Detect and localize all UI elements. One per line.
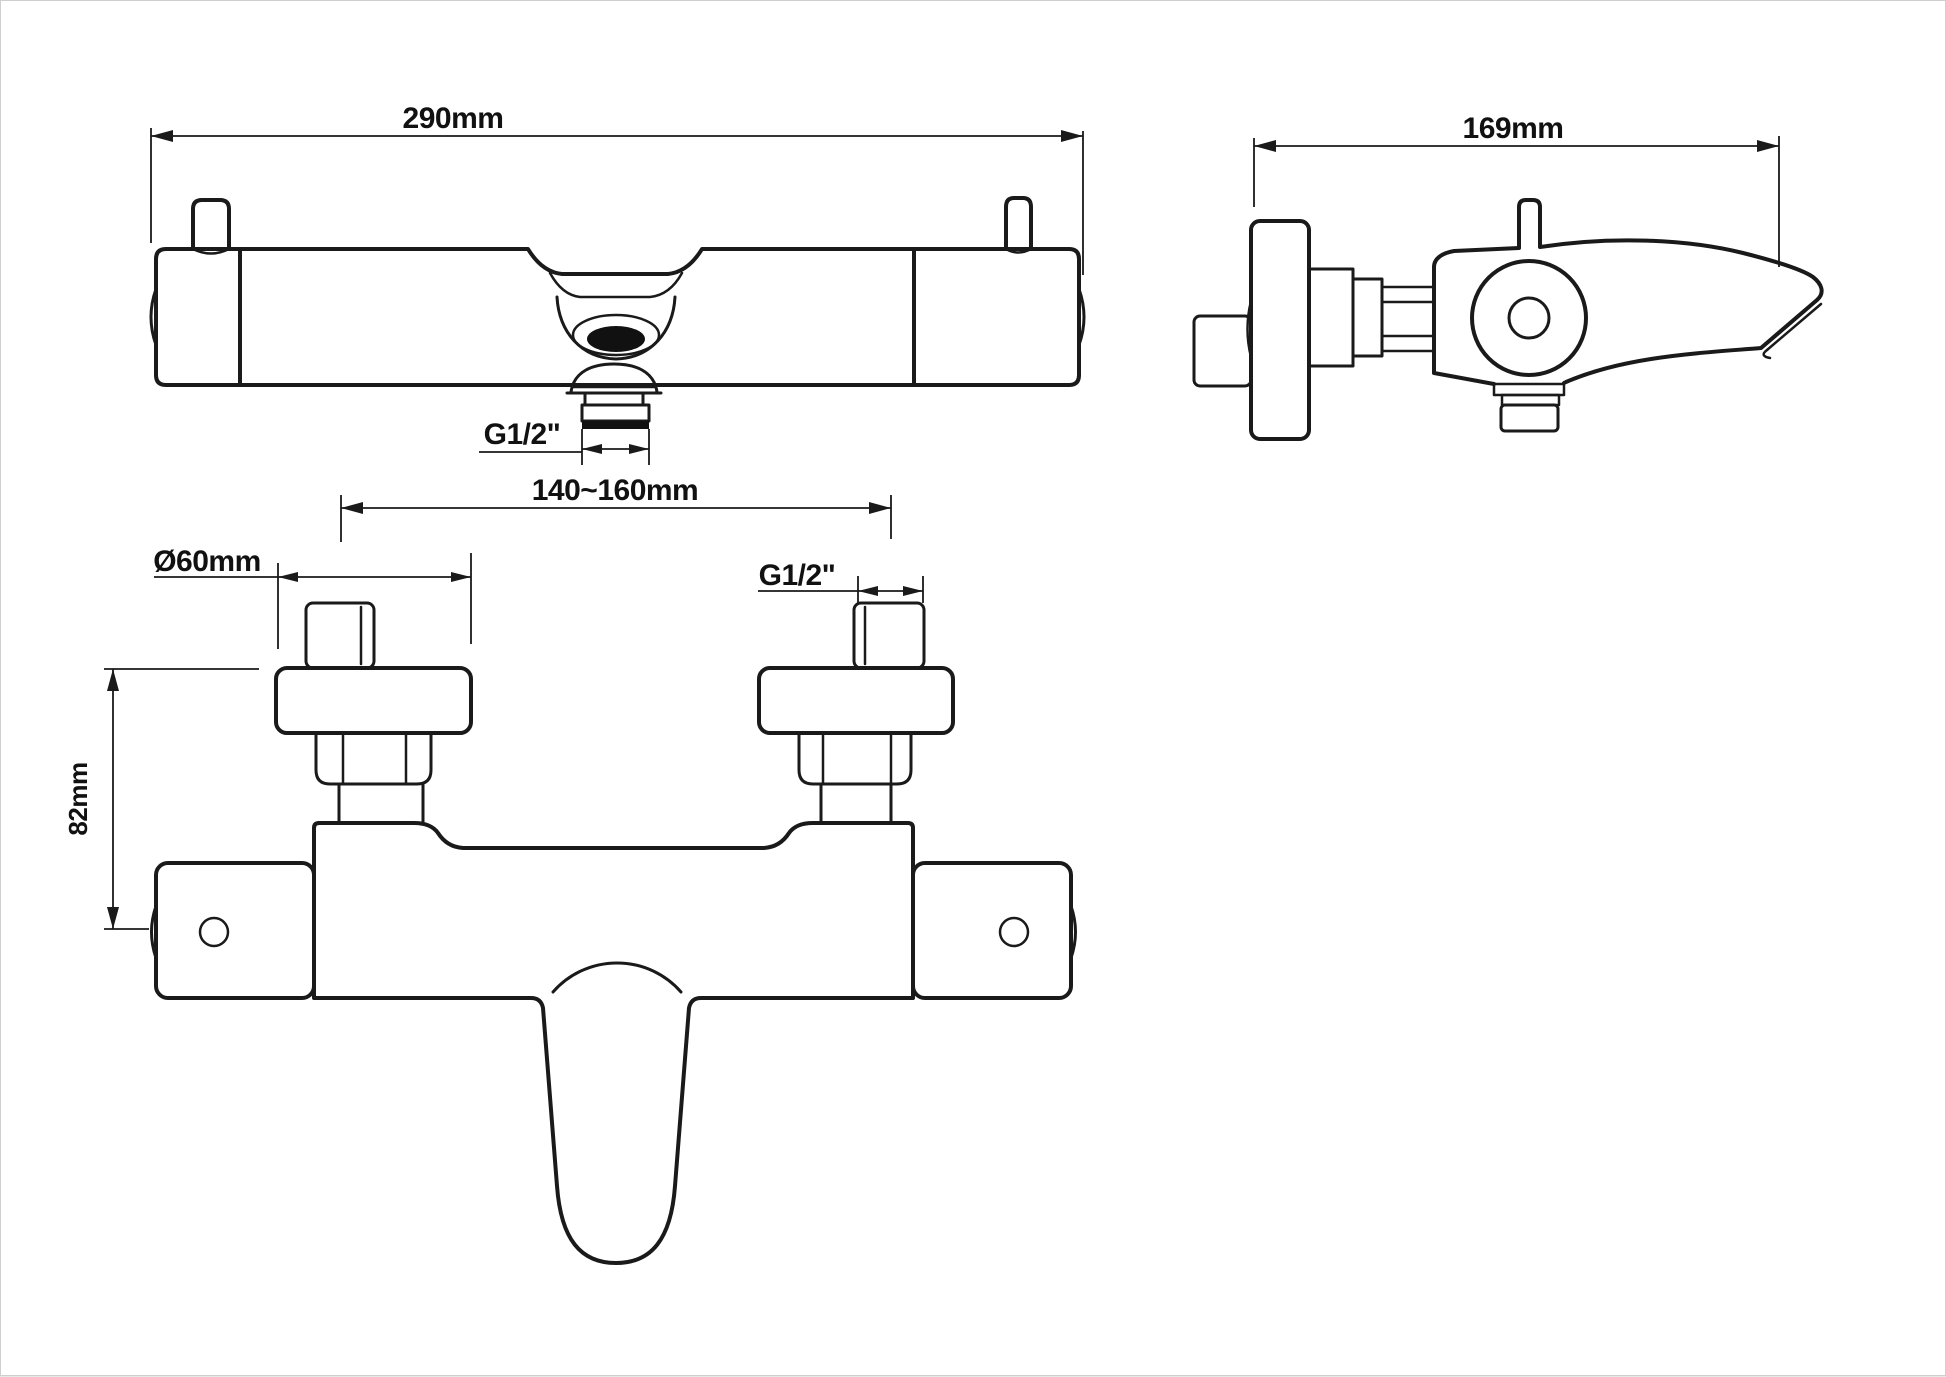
arrowhead-icon bbox=[1254, 140, 1276, 152]
arrowhead-icon bbox=[341, 502, 363, 514]
temperature-knob-stub bbox=[193, 200, 229, 249]
end-cap bbox=[913, 863, 1071, 998]
connector-shaft bbox=[1382, 336, 1434, 351]
spout-back-arc bbox=[553, 963, 681, 992]
port-block bbox=[582, 405, 649, 421]
wall-escutcheon bbox=[759, 668, 953, 733]
union-neck bbox=[821, 784, 891, 823]
front-view: 140~160mm Ø60mm G1/2" 82mm bbox=[63, 474, 1076, 1263]
diverter-knob-stub bbox=[1006, 198, 1031, 249]
arrowhead-icon bbox=[1757, 140, 1779, 152]
dim-body-height: 82mm bbox=[63, 669, 259, 929]
union-nut bbox=[316, 733, 431, 784]
arrowhead-icon bbox=[1061, 130, 1083, 142]
dim-label-overall-width: 290mm bbox=[403, 102, 504, 135]
drawing-sheet: 290mm bbox=[0, 0, 1946, 1376]
basin-inner-rim bbox=[550, 273, 682, 297]
inlet-nipple bbox=[306, 603, 374, 668]
right-end-cap bbox=[913, 863, 1076, 998]
arrowhead-icon bbox=[869, 502, 891, 514]
arrowhead-icon bbox=[858, 586, 878, 596]
nut-facet-line bbox=[343, 733, 406, 784]
dim-label-outlet-thread: G1/2" bbox=[484, 418, 561, 451]
arrowhead-icon bbox=[451, 572, 471, 582]
outlet-port-top-view bbox=[567, 364, 661, 429]
arrowhead-icon bbox=[582, 444, 602, 454]
shower-outlet-side bbox=[1494, 384, 1564, 431]
screw-hole bbox=[200, 918, 228, 946]
inlet-nipple-side bbox=[1194, 316, 1251, 386]
union-nut-side bbox=[1309, 269, 1353, 366]
spout-lip-hook bbox=[1764, 350, 1770, 358]
dim-label-wall-spacing: 140~160mm bbox=[532, 474, 698, 507]
arrowhead-icon bbox=[629, 444, 649, 454]
union-neck bbox=[339, 784, 423, 823]
arrowhead-icon bbox=[151, 130, 173, 142]
end-cap bbox=[156, 863, 314, 998]
technical-drawing: 290mm bbox=[1, 1, 1946, 1377]
left-end-cap bbox=[152, 863, 315, 998]
knob-center bbox=[1509, 298, 1549, 338]
dim-inlet-thread: G1/2" bbox=[758, 559, 923, 603]
dim-label-escutcheon-diameter: Ø60mm bbox=[153, 545, 261, 578]
spout-opening bbox=[587, 326, 645, 352]
union-collar bbox=[1353, 279, 1382, 356]
spout-basin bbox=[550, 273, 682, 359]
outlet-flange bbox=[1494, 384, 1564, 395]
wall-escutcheon bbox=[276, 668, 471, 733]
dim-escutcheon-diameter: Ø60mm bbox=[153, 545, 471, 649]
arrowhead-icon bbox=[903, 586, 923, 596]
outlet-thread-tip bbox=[1501, 405, 1558, 431]
right-wall-assembly bbox=[759, 603, 953, 823]
port-opening-edge bbox=[582, 421, 649, 429]
dim-label-body-height: 82mm bbox=[63, 762, 93, 835]
nut-facet-line bbox=[823, 733, 891, 784]
screw-hole bbox=[1000, 918, 1028, 946]
union-nut bbox=[799, 733, 911, 784]
mixer-body-front-outline bbox=[314, 823, 913, 1263]
dim-label-overall-depth: 169mm bbox=[1463, 112, 1564, 145]
arrowhead-icon bbox=[278, 572, 298, 582]
arrowhead-icon bbox=[107, 669, 119, 691]
knob-circle bbox=[1472, 261, 1586, 375]
spout-lip-line bbox=[1767, 304, 1821, 350]
connector-shaft bbox=[1382, 287, 1434, 302]
wall-escutcheon-side bbox=[1251, 221, 1309, 439]
dim-label-inlet-thread: G1/2" bbox=[759, 559, 836, 592]
port-neck bbox=[585, 393, 643, 405]
left-wall-assembly bbox=[276, 603, 471, 823]
dim-wall-spacing: 140~160mm bbox=[341, 474, 891, 542]
side-view: 169mm bbox=[1194, 112, 1822, 439]
top-view-plan: 290mm bbox=[151, 102, 1084, 465]
arrowhead-icon bbox=[107, 907, 119, 929]
